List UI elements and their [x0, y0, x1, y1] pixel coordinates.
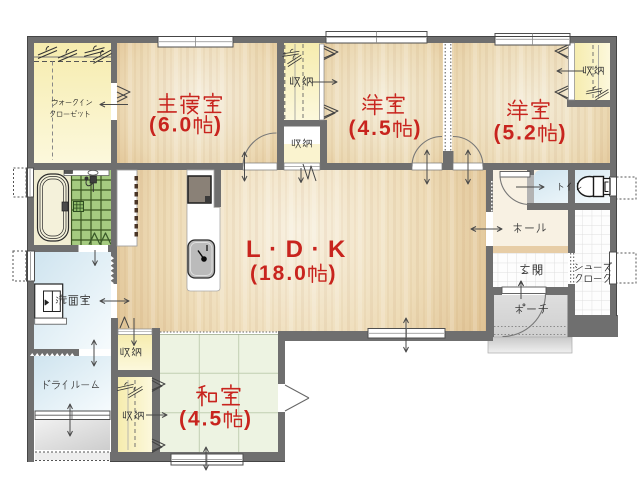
- svg-text:): ): [559, 122, 566, 145]
- svg-text:(18.0: (18.0: [250, 262, 308, 285]
- svg-text:(4.5: (4.5: [349, 117, 393, 140]
- svg-text:): ): [214, 114, 221, 137]
- svg-text:): ): [244, 408, 251, 431]
- svg-text:(6.0: (6.0: [149, 114, 193, 137]
- svg-text:L·D·K: L·D·K: [246, 236, 354, 263]
- svg-text:): ): [329, 262, 336, 285]
- svg-text:(4.5: (4.5: [179, 408, 223, 431]
- svg-text:): ): [414, 117, 421, 140]
- svg-text:(5.2: (5.2: [494, 122, 538, 145]
